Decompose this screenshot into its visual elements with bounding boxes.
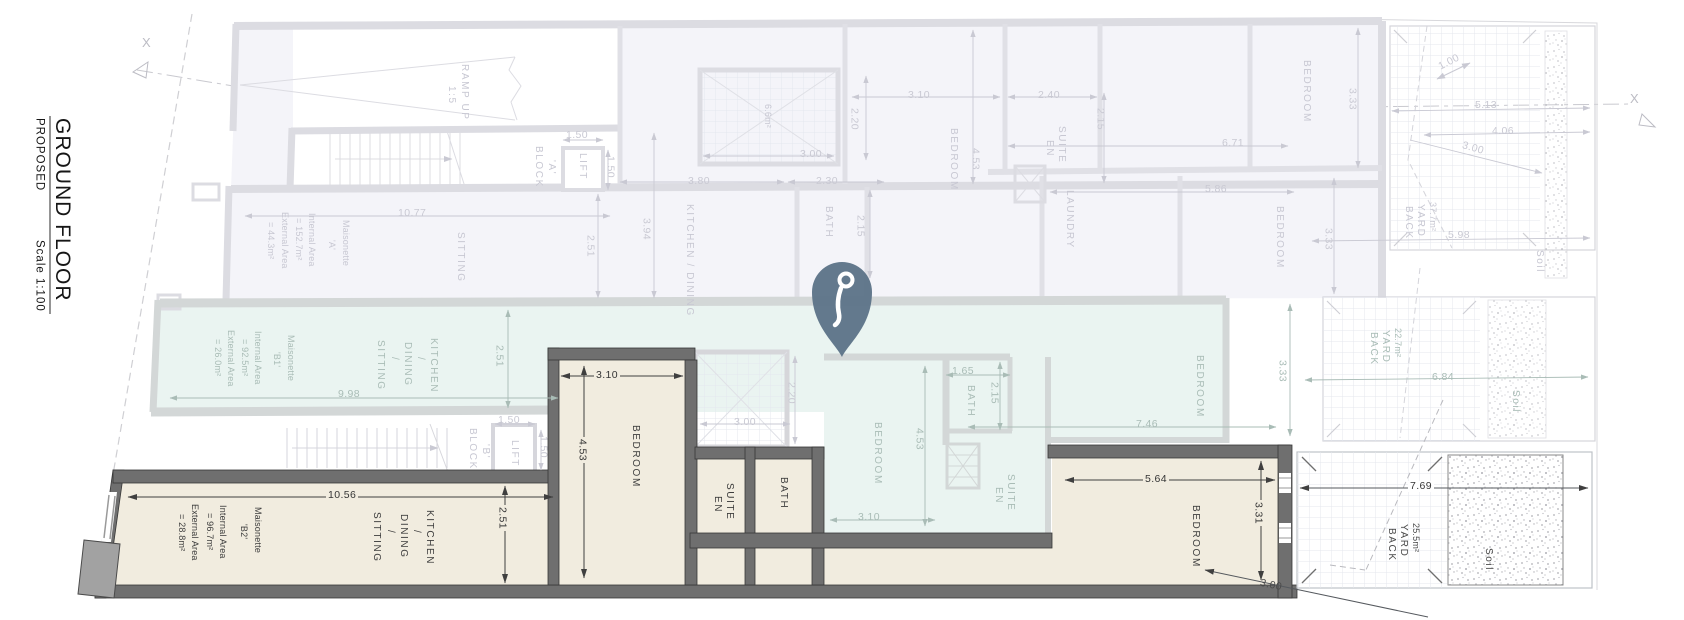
maisonette-a-internal-value: = 152.7m² xyxy=(294,218,303,261)
scale-label: Scale 1:100 xyxy=(33,240,45,312)
floor-title: GROUND FLOOR xyxy=(52,118,73,302)
kds-slash-b2-2: / xyxy=(411,530,421,534)
floorplan-canvas: GROUND FLOOR PROPOSED Scale 1:100 X X RA… xyxy=(0,0,1684,620)
dim-a-kitchen-w: 3.80 xyxy=(688,176,710,187)
section-marker-right: X xyxy=(1630,92,1639,105)
kds-slash-b1-2: / xyxy=(415,357,425,361)
dim-a-bath-w: 2.30 xyxy=(816,176,838,187)
section-marker-left: X xyxy=(142,36,151,49)
dim-b1-shaft-d: 2.20 xyxy=(786,382,797,404)
shaft-area-a: 6.6m² xyxy=(763,104,772,128)
dim-b2-bedroom2-w: 5.64 xyxy=(1143,474,1169,485)
room-bedroom-a1: BEDROOM xyxy=(948,128,958,191)
maisonette-a-id: 'A' xyxy=(327,240,336,250)
dim-b1-kds-w: 9.98 xyxy=(338,389,360,400)
maisonette-a-external-label: External Area xyxy=(280,212,289,269)
backyard-b1-1: BACK xyxy=(1368,332,1378,366)
dim-a-lift-d: 1.50 xyxy=(605,156,616,178)
block-b-label: BLOCK xyxy=(467,428,477,470)
soil-b1-label: Soil xyxy=(1510,390,1520,413)
dim-a-lift-w: 1.50 xyxy=(566,130,588,141)
lift-a-label: LIFT xyxy=(577,153,587,180)
light-shaft-b xyxy=(695,352,787,447)
dim-b2-bedroom2-d: 3.31 xyxy=(1253,500,1264,526)
dim-a-yard-w1: 5.13 xyxy=(1475,100,1497,111)
maisonette-a-internal-label: Internal Area xyxy=(307,213,316,267)
soil-a-label: Soil xyxy=(1534,250,1544,273)
dim-a-yard-w2: 4.06 xyxy=(1492,126,1514,137)
dim-a-bedroom2-w: 6.71 xyxy=(1222,138,1244,149)
dim-a-bedroom2-d: 3.33 xyxy=(1347,88,1358,110)
room-kitchen-dining-a: KITCHEN / DINING xyxy=(684,204,694,317)
dim-b1-yard-w: 6.84 xyxy=(1432,372,1454,383)
room-ensuite-b2-2: SUITE xyxy=(724,483,734,520)
maisonette-b2-external-label: External Area xyxy=(190,504,199,561)
room-bath-b1: BATH xyxy=(965,385,975,417)
room-bedroom-a3: BEDROOM xyxy=(1274,206,1284,269)
dim-b1-yard-d: 3.33 xyxy=(1277,360,1288,382)
room-bedroom-b1a: BEDROOM xyxy=(872,422,882,485)
room-dining-b1: DINING xyxy=(402,342,412,387)
soil-b2-label: Soil xyxy=(1483,548,1493,571)
maisonette-a-external-value: = 44.3m² xyxy=(266,222,275,259)
room-ensuite-b1-1: EN xyxy=(993,487,1003,504)
dim-a-bedroom1-d: 4.53 xyxy=(970,148,981,170)
room-ensuite-b2-1: EN xyxy=(712,496,722,513)
kds-slash-b2-1: / xyxy=(385,530,395,534)
ramp-label: RAMP UP xyxy=(459,64,469,121)
maisonette-b2-internal-label: Internal Area xyxy=(218,505,227,559)
block-a-id: 'A' xyxy=(546,160,556,175)
backyard-a-area: 37.7m² xyxy=(1428,202,1437,231)
ramp-ratio-label: 1:5 xyxy=(446,86,456,105)
maisonette-b2-id: 'B2' xyxy=(239,524,248,539)
dim-b1-shaft-w: 3.00 xyxy=(734,417,756,428)
dim-blockb-lift-w: 1.50 xyxy=(498,415,520,426)
maisonette-b1-external-value: = 26.0m² xyxy=(213,339,222,376)
maisonette-b1-name: Maisonette xyxy=(286,335,295,381)
room-bedroom-b1b: BEDROOM xyxy=(1194,355,1204,418)
room-sitting-a: SITTING xyxy=(455,232,465,283)
dim-a-sitting-w: 10.77 xyxy=(398,208,426,219)
dim-a-kitchen-d: 3.94 xyxy=(641,218,652,240)
dim-a-sitting-d: 2.51 xyxy=(585,235,596,257)
backyard-a-1: BACK xyxy=(1403,206,1413,240)
dim-a-shaft-d: 2.20 xyxy=(849,108,860,130)
maisonette-b1-id: 'B1' xyxy=(272,352,281,367)
room-sitting-b2: SITTING xyxy=(371,512,381,563)
dim-a-ensuite-w: 2.40 xyxy=(1038,90,1060,101)
backyard-b1-area: 22.7m² xyxy=(1393,328,1402,357)
block-b-id: 'B' xyxy=(480,444,490,459)
dim-a-ensuite-d: 2.15 xyxy=(1095,108,1106,130)
room-bedroom-a2: BEDROOM xyxy=(1301,60,1311,123)
block-a-label: BLOCK xyxy=(533,146,543,188)
dim-b1-bedroom1-d: 4.53 xyxy=(914,428,925,450)
dim-b1-unit-w: 7.46 xyxy=(1136,419,1158,430)
backyard-b2-1: BACK xyxy=(1386,528,1396,562)
room-ensuite-b1-2: SUITE xyxy=(1005,474,1015,511)
maisonette-b2-internal-value: = 96.7m² xyxy=(205,513,214,550)
maisonette-b1-internal-value: = 92.5m² xyxy=(240,339,249,376)
dim-b1-bath-d: 2.15 xyxy=(989,382,1000,404)
dim-a-bedroom3-d: 3.33 xyxy=(1323,228,1334,250)
dim-b2-kds-d: 2.51 xyxy=(497,505,508,531)
dim-b2-bedroom1-d: 4.53 xyxy=(577,437,588,463)
dim-a-bedroom3-w: 5.86 xyxy=(1205,184,1227,195)
backyard-b2-area: 25.5m² xyxy=(1411,523,1420,552)
backyard-a-2: YARD xyxy=(1415,204,1425,237)
backyard-b1-2: YARD xyxy=(1380,330,1390,363)
room-dining-b2: DINING xyxy=(398,514,408,559)
dim-a-shaft-w: 3.00 xyxy=(800,149,822,160)
dim-blockb-lift-d: 1.50 xyxy=(538,436,549,458)
room-bath-b2: BATH xyxy=(778,477,788,509)
kds-slash-b1-1: / xyxy=(389,357,399,361)
lift-b-label: LIFT xyxy=(509,440,519,467)
room-bath-a: BATH xyxy=(823,206,833,238)
dim-a-bath-d: 2.15 xyxy=(855,215,866,237)
dim-b1-bedroom1-w: 3.10 xyxy=(858,512,880,523)
maisonette-b1-external-label: External Area xyxy=(226,330,235,387)
room-kitchen-b2: KITCHEN xyxy=(424,510,434,565)
room-ensuite-a-2: SUITE xyxy=(1056,126,1066,163)
maisonette-b2-name: Maisonette xyxy=(253,507,262,553)
room-bedroom-b2a: BEDROOM xyxy=(630,425,640,488)
room-ensuite-a-1: EN xyxy=(1044,140,1054,157)
room-sitting-b1: SITTING xyxy=(375,340,385,391)
dim-b2-bedroom1-w: 3.10 xyxy=(594,370,620,381)
maisonette-b1-internal-label: Internal Area xyxy=(253,331,262,385)
room-laundry-a: LAUNDRY xyxy=(1064,190,1074,249)
room-kitchen-b1: KITCHEN xyxy=(428,338,438,393)
dim-b1-bath-w: 1.65 xyxy=(952,366,974,377)
maisonette-b2-external-value: = 28.8m² xyxy=(177,514,186,551)
dim-b2-kds-w: 10.56 xyxy=(326,490,358,501)
status-label: PROPOSED xyxy=(33,118,45,191)
dim-a-bedroom1-w: 3.10 xyxy=(908,90,930,101)
backyard-b2-2: YARD xyxy=(1398,524,1408,557)
dim-b2-yard-w: 7.69 xyxy=(1408,481,1434,492)
dim-a-yard-w3: 5.98 xyxy=(1448,230,1470,241)
dim-b1-kds-d: 2.51 xyxy=(494,345,505,367)
maisonette-a-name: Maisonette xyxy=(341,220,350,266)
room-bedroom-b2b: BEDROOM xyxy=(1190,505,1200,568)
